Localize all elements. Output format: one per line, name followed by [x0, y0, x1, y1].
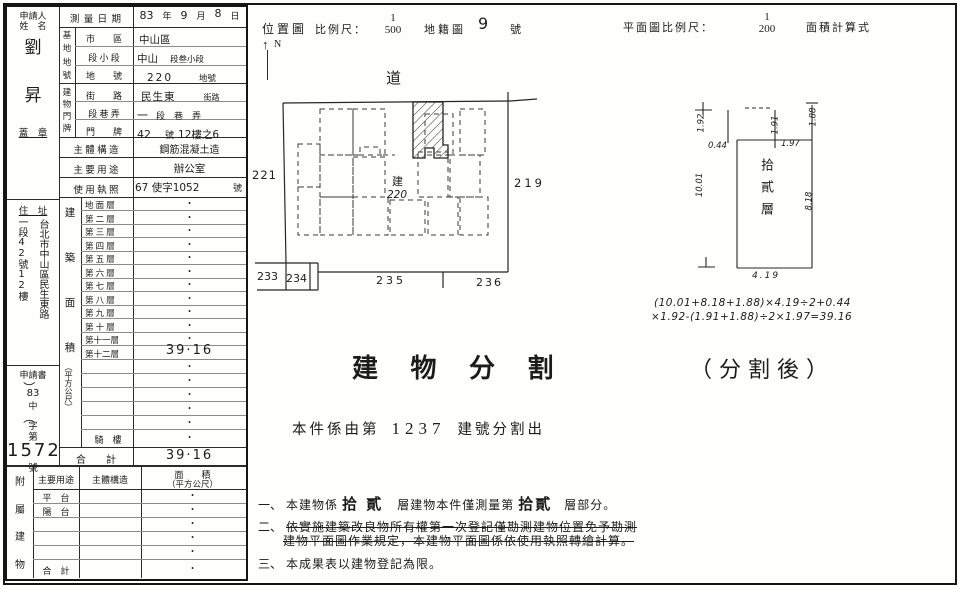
dim-side-left: 10.01	[695, 173, 705, 197]
form-line	[75, 27, 76, 83]
road-label: 道	[386, 67, 401, 88]
form-line	[59, 177, 246, 178]
group-char: 號	[63, 69, 72, 81]
survey-day: 8	[214, 7, 221, 20]
survey-date-label: 測 量 日 期	[61, 11, 131, 25]
month-unit: 月	[196, 9, 205, 22]
note-text: 本建物係	[286, 498, 338, 512]
group-char: 物	[63, 98, 72, 110]
value-pr: 段叁小段	[170, 54, 204, 64]
floor-row-value: •	[135, 307, 244, 316]
application-office: 中	[9, 399, 57, 412]
survey-result-document: 申請人 姓 名 劉 昇 蓋 章 住 址 台北市中山區民生東路 一段42號12樓 …	[0, 0, 960, 590]
dim-bottom: 4.19	[752, 271, 780, 281]
application-doc-label: 申請書	[9, 368, 57, 381]
form-line	[81, 401, 246, 402]
blank-row-value: •	[135, 376, 244, 385]
dim-top-right: 1.88	[808, 108, 818, 127]
value-hw: 67 使字1052	[135, 180, 199, 195]
form-line	[59, 27, 246, 28]
subject-building-hatched	[413, 102, 448, 158]
area-total-label: 合 計	[61, 451, 131, 466]
after-split-caption: （分割後）	[690, 352, 835, 384]
application-number: 1572	[7, 440, 57, 461]
address-text: 台北市中山區民生東路	[35, 219, 50, 361]
floor-row-label: 第 十 層	[85, 321, 115, 333]
annex-row-area: •	[141, 533, 244, 542]
area-formula-line1: (10.01+8.18+1.88)×4.19÷2+0.44	[654, 297, 851, 309]
dim-top-mid: 1.91	[770, 116, 780, 135]
floor-row-label: 第 九 層	[85, 307, 115, 319]
form-line	[81, 373, 246, 374]
form-line	[7, 199, 59, 200]
address-label: 住 址	[9, 203, 57, 217]
form-line	[75, 83, 76, 137]
value-hw: 一	[137, 109, 148, 122]
plan-scale-label: 平面圖比例尺：	[623, 19, 714, 35]
annex-header-structure: 主體構造	[79, 473, 141, 486]
group-char: 面	[65, 295, 76, 310]
survey-date-value: 83 年 9 月 8 日	[135, 9, 244, 22]
annex-row-use: 平 台	[33, 491, 79, 504]
form-line	[33, 559, 246, 560]
floor-row-value: •	[135, 321, 244, 330]
dim-inset-left: 0.44	[708, 141, 727, 151]
parcel-label-235: 235	[376, 274, 406, 287]
application-unit: 號	[9, 460, 57, 474]
origin-sentence: 本件係由第 1237 建號分割出	[292, 418, 545, 439]
floor-row-label: 第 四 層	[85, 240, 115, 252]
door-row-value: 民生東 街路	[141, 87, 244, 105]
origin-pre: 本件係由第	[292, 422, 380, 438]
scale-numerator: 1	[378, 12, 408, 24]
door-row-label: 段 巷 弄	[77, 107, 131, 120]
arcade-label: 騎 樓	[85, 433, 131, 446]
floor-12-area-value: 39·16	[135, 343, 244, 358]
survey-year: 83	[139, 9, 153, 22]
door-plate-group-label: 建 物 門 牌	[59, 86, 75, 134]
floor-row-value: •	[135, 294, 244, 303]
floor-row-label: 地 面 層	[85, 199, 115, 211]
note-2-line2: 建物平面圖作業規定，本建物平面圖係依使用執照轉繪計算。	[283, 532, 634, 550]
dim-inset-right: 1.97	[781, 139, 800, 149]
group-char: 地	[63, 56, 72, 68]
group-char: 物	[15, 556, 25, 571]
door-row-value: 一 段 巷 弄	[137, 106, 244, 124]
applicant-name-char: 劉	[9, 33, 57, 58]
note-text: 層部分。	[564, 498, 616, 512]
blank-row-value: •	[135, 362, 244, 371]
form-line	[33, 545, 246, 546]
value-hw: 中山區	[139, 34, 171, 46]
group-char: 建	[15, 528, 25, 543]
map-buildings-dashed	[298, 109, 488, 235]
blank-row-value: •	[135, 390, 244, 399]
group-char: 築	[65, 250, 76, 265]
note-text: 本成果表以建物登記為限。	[286, 557, 442, 571]
structure-value: 鋼筋混凝土造	[135, 141, 244, 156]
note-floor-handwritten: 拾貳	[518, 495, 552, 513]
value-hw: 42	[137, 128, 151, 141]
blank-row-value: •	[135, 404, 244, 413]
door-row-label: 街 路	[77, 89, 131, 102]
north-arrow-stem	[267, 50, 268, 80]
parcel-label-233: 233	[257, 270, 278, 283]
value-pr: 街路	[204, 93, 220, 102]
note-number: 一、	[258, 498, 282, 512]
group-char: 屬	[15, 501, 25, 516]
form-line	[81, 429, 246, 430]
cadastral-map-label: 地籍圖	[424, 21, 466, 37]
dim-top-left: 1.92	[696, 114, 706, 133]
area-formula-line2: ×1.92-(1.91+1.88)÷2×1.97=39.16	[651, 311, 852, 323]
origin-building-number: 1237	[392, 419, 446, 438]
parcel-label-236: 236	[476, 276, 503, 289]
scale-denominator: 500	[378, 24, 408, 36]
floor-row-value: •	[135, 253, 244, 262]
floor-row-label: 第十二層	[85, 348, 119, 360]
value-pr: 號	[165, 130, 174, 140]
parcel-label-221: 221	[252, 168, 277, 182]
origin-post: 建號分割出	[458, 422, 546, 438]
license-label: 使 用 執 照	[61, 182, 131, 196]
group-char: 地	[63, 42, 72, 54]
annex-row-area: •	[141, 491, 244, 500]
value-hw: 民生東	[141, 91, 176, 103]
floor-row-value: •	[135, 267, 244, 276]
base-row-value: 220 地號	[147, 68, 244, 86]
door-row-label: 門 牌	[77, 125, 131, 138]
floor-row-label: 第 五 層	[85, 253, 115, 265]
annex-row-area: •	[141, 519, 244, 528]
cadastral-sheet-unit: 號	[510, 21, 521, 37]
value-hw: 12樓之6	[178, 129, 219, 141]
note-floor-handwritten: 拾 貳	[342, 495, 383, 513]
annex-row-use: 合 計	[33, 564, 79, 577]
building-area-group-label: 建 築 面 積	[59, 205, 81, 355]
annex-header-use: 主要用途	[33, 473, 79, 486]
base-row-label: 段 小 段	[77, 51, 131, 64]
seal-label: 蓋 章	[9, 125, 57, 139]
note-struck-text: 建物平面圖作業規定，本建物平面圖係依使用執照轉繪計算。	[283, 534, 634, 548]
dim-side-right: 8.18	[804, 192, 814, 211]
floor-row-value: •	[135, 213, 244, 222]
form-line	[81, 197, 82, 447]
form-line	[59, 157, 246, 158]
floor-row-value: •	[135, 280, 244, 289]
parcel-label-234: 234	[286, 272, 307, 285]
document-main-title: 建 物 分 割	[352, 348, 567, 385]
floor-row-label: 第 七 層	[85, 280, 115, 292]
floor-row-label: 第 二 層	[85, 213, 115, 225]
value-pr: 地號	[199, 73, 216, 83]
north-label: N	[274, 39, 281, 50]
base-row-label: 市 區	[77, 32, 131, 45]
year-unit: 年	[162, 9, 171, 22]
annex-row-area: •	[141, 564, 244, 573]
location-scale-label: 比例尺：	[315, 21, 367, 37]
note-1: 一、 本建物係 拾 貳 層建物本件僅測量第 拾貳 層部分。	[258, 493, 616, 514]
note-3: 三、 本成果表以建物登記為限。	[258, 555, 442, 573]
usage-label: 主 要 用 途	[61, 162, 131, 176]
base-parcel-group-label: 基 地 地 號	[59, 29, 75, 81]
base-row-value: 中山區	[139, 30, 244, 48]
floor-row-label: 第十一層	[85, 334, 119, 346]
subject-parcel-char: 建	[392, 173, 403, 189]
note-number: 三、	[258, 557, 282, 571]
location-map-title: 位置圖	[262, 20, 307, 37]
group-char: 牌	[63, 122, 72, 134]
value-hw: 220	[147, 72, 173, 84]
parcel-label-219: 219	[514, 176, 545, 190]
annex-row-area: •	[141, 547, 244, 556]
structure-label: 主 體 構 造	[61, 142, 131, 156]
group-char: 建	[63, 86, 72, 98]
group-char: 附	[15, 473, 25, 488]
floor-row-value: •	[135, 240, 244, 249]
annex-group-label: 附 屬 建 物	[7, 473, 33, 571]
address-text: 一段42號12樓	[14, 217, 29, 339]
value-pr: 號	[233, 181, 242, 194]
area-total-value: 39·16	[135, 448, 244, 463]
group-char: 門	[63, 110, 72, 122]
scale-denominator: 200	[752, 23, 782, 35]
floor-row-label: 第 八 層	[85, 294, 115, 306]
note-text: 層建物本件僅測量第	[397, 498, 514, 512]
form-line	[7, 365, 59, 366]
area-unit-label: （平方公尺）	[63, 363, 74, 447]
base-row-label: 地 號	[77, 69, 131, 82]
group-char: 建	[65, 205, 76, 220]
floor-row-label: 第 三 層	[85, 226, 115, 238]
group-char: 積	[65, 340, 76, 355]
cadastral-sheet-no: 9	[478, 14, 488, 33]
plan-scale-fraction: 1 200	[752, 11, 782, 35]
value-hw: 中山	[137, 53, 158, 65]
form-line	[59, 197, 246, 198]
applicant-name-char: 昇	[9, 81, 57, 106]
area-calc-label: 面積計算式	[806, 19, 871, 35]
floor-row-value: •	[135, 334, 244, 343]
annex-header-area-unit: （平方公尺）	[141, 478, 244, 490]
applicant-title: 姓 名	[9, 19, 57, 32]
note-number: 二、	[258, 520, 282, 534]
floor-row-label: 第 六 層	[85, 267, 115, 279]
survey-month: 9	[180, 9, 187, 22]
survey-form: 申請人 姓 名 劉 昇 蓋 章 住 址 台北市中山區民生東路 一段42號12樓 …	[5, 5, 248, 581]
form-line	[81, 387, 246, 388]
license-value: 67 使字1052 號	[135, 180, 242, 195]
blank-row-value: •	[135, 418, 244, 427]
annex-row-area: •	[141, 505, 244, 514]
floor-row-value: •	[135, 199, 244, 208]
location-scale-fraction: 1 500	[378, 12, 408, 36]
group-char: 基	[63, 29, 72, 41]
plan-floor-label: 拾貳層	[756, 158, 775, 240]
floor-row-value: •	[135, 226, 244, 235]
base-row-value: 中山 段叁小段	[137, 49, 244, 67]
annex-row-use: 陽 台	[33, 505, 79, 518]
application-year: 83	[9, 388, 57, 399]
form-line	[81, 415, 246, 416]
scale-numerator: 1	[752, 11, 782, 23]
subject-parcel-number: 220	[387, 189, 407, 201]
arcade-value: •	[135, 433, 244, 442]
value-pr: 段 巷 弄	[156, 111, 201, 121]
form-line	[133, 7, 134, 465]
day-unit: 日	[230, 9, 239, 22]
form-line	[33, 531, 246, 532]
usage-value: 辦公室	[135, 161, 244, 176]
